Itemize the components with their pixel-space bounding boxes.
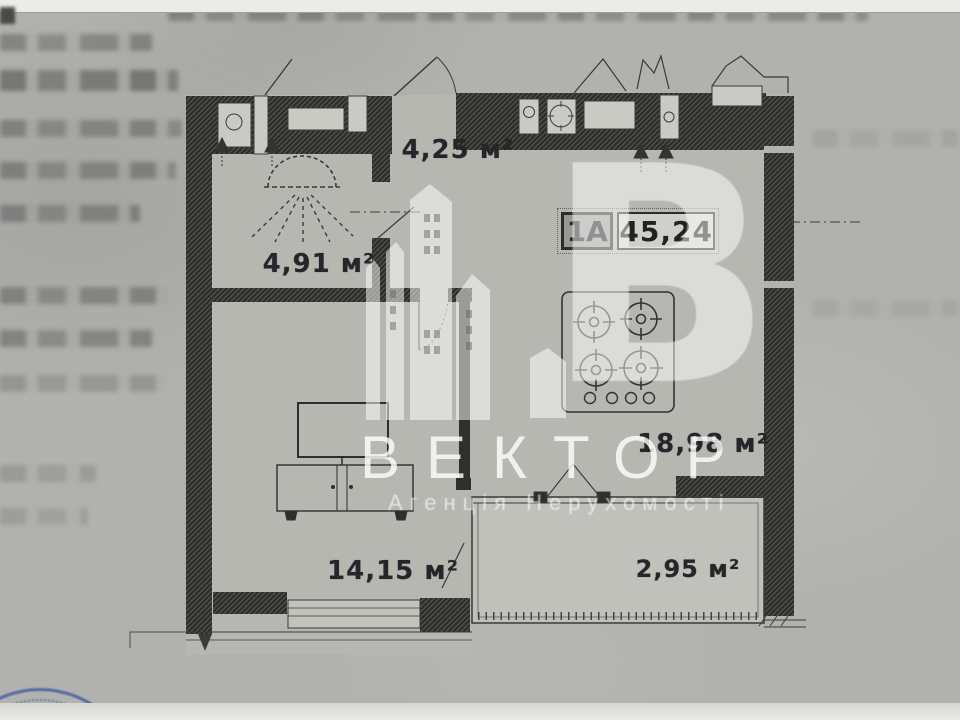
- unit-info-box: 1A 45,24: [557, 208, 719, 254]
- bathroom-area-label: 4,91 м²: [263, 249, 376, 279]
- photo-edge-top: [0, 0, 960, 13]
- kitchen-living-area-label: 18,98 м²: [637, 429, 769, 459]
- room-area-label: 14,15 м²: [327, 556, 459, 586]
- unit-total-area: 45,24: [617, 212, 715, 250]
- floor-plan-drawing: [0, 0, 960, 720]
- entrance-door: [265, 57, 456, 96]
- corner-smudge: [0, 7, 15, 24]
- scanned-floor-plan-photo: 4,91 м² 4,25 м² 18,98 м² 14,15 м² 2,95 м…: [0, 0, 960, 720]
- unit-number: 1A: [561, 212, 613, 250]
- balcony-area-label: 2,95 м²: [636, 555, 741, 583]
- hallway-area-label: 4,25 м²: [402, 135, 515, 165]
- washer-icon: [519, 99, 539, 134]
- photo-edge-bottom: [0, 703, 960, 720]
